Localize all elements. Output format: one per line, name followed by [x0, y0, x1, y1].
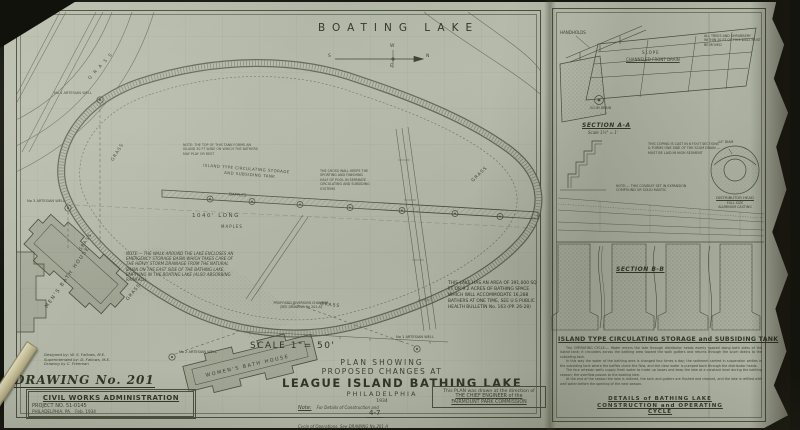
section-a-label: SECTION A-A [582, 122, 631, 129]
details-paragraph: The OPERATING CYCLE:— Water enters the l… [560, 346, 762, 359]
diversion-chamber-note: PROPOSED DIVERSION CHAMBER (SEE DRAWING … [272, 301, 330, 310]
details-heading: ISLAND TYPE CIRCULATING STORAGE and SUBS… [558, 336, 760, 343]
details-paragraph: In this way the water of the bathing are… [560, 359, 762, 368]
coping-note: THIS COPING IS CAST IN 6 FOOT SECTIONS &… [648, 142, 720, 155]
compass-e: E [390, 64, 393, 69]
scale-label: SCALE 1"= 50' [250, 341, 335, 352]
front-drain-label: CHANNELED FRONT DRAIN [626, 57, 680, 62]
note-label: Note: [298, 405, 312, 411]
statement-box: This PLAN was drawn at the direction of … [432, 386, 546, 408]
details-footer-line3: CYCLE [575, 409, 745, 416]
credit-drawn: Drawing by C. Freeman [44, 362, 110, 367]
details-footer-line2: CONSTRUCTION and OPERATING [575, 403, 745, 410]
compass-s: S [328, 54, 331, 59]
distributor-head-label: DISTRIBUTOR HEAD FULL SIZE ALUMINUM CAST… [705, 196, 765, 209]
well-3-label: No 3 ARTESIAN WELL [27, 199, 65, 203]
cwa-box: CIVIL WORKS ADMINISTRATION PROJECT NO. 5… [28, 391, 194, 417]
statement-line3: FAIRMOUNT PARK COMMISSION [434, 400, 544, 406]
walk-note: NOTE:— THE WALK AROUND THE LAKE ENCLOSES… [126, 251, 238, 282]
well-4-label: No 4 ARTESIAN WELL [54, 91, 92, 95]
scum-drain-label: SCUM DRAIN [590, 106, 614, 110]
details-footer-line1: DETAILS of BATHING LAKE [575, 396, 745, 403]
credits-block: Designed by: W. S. Fallows, M.E. Superin… [44, 353, 110, 367]
island-top-note: NOTE: THE TOP OF THIS TANK FORMS AN ISLA… [183, 143, 263, 156]
slope-label: SLOPE [642, 50, 660, 55]
blueprint-scan: BOATING LAKE N S W E G R A S S GRASS GRA… [0, 0, 800, 430]
island-length-label: 1040' LONG [192, 213, 240, 220]
diam-label: 14" DIAM [718, 140, 733, 144]
well-2-label: No 2 ARTESIAN WELL [179, 350, 217, 354]
cwa-agency: CIVIL WORKS ADMINISTRATION [32, 394, 190, 402]
compass-n: N [426, 54, 429, 59]
well-1-label: No 1 ARTESIAN WELL [396, 335, 434, 339]
compass-w: W [390, 44, 394, 49]
cwa-location: PHILADELPHIA, PA. [32, 409, 71, 414]
conduit-note: NOTE:— THIS CONDUIT SET IN EXPANSION COM… [616, 184, 700, 193]
details-paragraphs: The OPERATING CYCLE:— Water enters the l… [560, 346, 762, 386]
title-line2: PROPOSED CHANGES AT [282, 367, 482, 376]
details-paragraph: At the end of the season the lake is dra… [560, 377, 762, 386]
title-line1: PLAN SHOWING [282, 358, 482, 367]
section-b-label: SECTION B-B [616, 266, 665, 273]
handholds-label: HANDHOLDS [560, 30, 586, 35]
section-a-scale: Scale 1½" = 1' [588, 130, 618, 135]
details-paragraph: The four artesian wells supply fresh wat… [560, 368, 762, 377]
details-footer: DETAILS of BATHING LAKE CONSTRUCTION and… [575, 396, 745, 416]
boating-lake-label: BOATING LAKE [318, 22, 479, 35]
cross-wall-note: THE CROSS WALL KEEPS THE SPORTING AND FI… [320, 169, 372, 191]
cwa-location-date: PHILADELPHIA, PA. Feb. 1934 [32, 409, 190, 414]
drawing-number: DRAWING No. 201 [14, 373, 155, 388]
trees-note: ALL TREES AND SHRUBBERY WITHIN 20 FT OF … [704, 34, 762, 47]
sheet-number: 4-7 [366, 409, 383, 418]
cwa-date: Feb. 1934 [75, 409, 96, 414]
lake-area-note: THIS LAKE HAS AN AREA OF 391,000 SQ FT O… [448, 281, 538, 311]
distributor-line3: ALUMINUM CASTING [705, 205, 765, 209]
maples-label: MAPLES [221, 225, 243, 230]
